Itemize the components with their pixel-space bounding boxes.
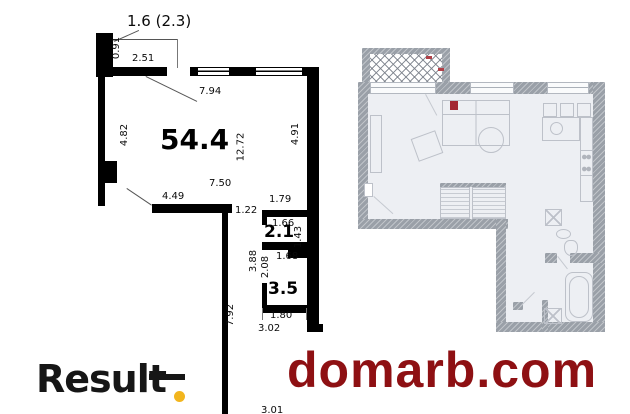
room-2-1-label: 2.1	[264, 224, 294, 241]
dim-1-43: 1.43	[294, 226, 304, 248]
dim-1-68: 1.68	[276, 252, 298, 262]
entry-door-leaf	[364, 183, 373, 197]
top-wall-a	[96, 67, 167, 76]
dim-1-22: 1.22	[235, 206, 257, 216]
wall-cabinet-2	[560, 103, 574, 117]
left-wall-upper	[98, 76, 105, 161]
dim-3-02: 3.02	[258, 324, 280, 334]
balcony-right-wall	[442, 48, 450, 86]
right-wall-foot	[307, 324, 323, 332]
dim-3-88: 3.88	[249, 250, 259, 272]
listing-image: 1.6 (2.3) 0.91 2.51 7.94 4.82 54.4 12.72…	[0, 0, 630, 414]
round-table	[478, 127, 504, 153]
window-a	[470, 82, 514, 94]
result-logo-text: Result	[36, 360, 166, 398]
window-2	[255, 67, 303, 76]
dim-4-91: 4.91	[291, 123, 301, 145]
left-wall-block	[98, 161, 117, 183]
dim-3-01-clipped: 3.01	[261, 406, 283, 414]
window-1	[197, 67, 230, 76]
left-wall	[358, 82, 368, 229]
bathtub-inner	[569, 276, 589, 318]
ext-tick-a	[262, 308, 263, 320]
inner-vertical-wall	[496, 219, 506, 332]
room21-top-wall	[262, 210, 307, 217]
wall-cabinet-1	[543, 103, 557, 117]
top-wall-c	[230, 67, 255, 76]
balcony-left-wall	[362, 48, 370, 86]
right-wall	[307, 67, 319, 324]
kitchen-sink	[550, 122, 563, 135]
bathroom-sink	[556, 229, 571, 239]
dim-4-82: 4.82	[120, 124, 130, 146]
bath-partition-b	[570, 253, 605, 263]
dim-2-51: 2.51	[132, 54, 154, 64]
dim-2-08: 2.08	[261, 256, 271, 278]
total-area-label: 54.4	[160, 126, 229, 154]
balcony-area-label: 1.6 (2.3)	[127, 14, 191, 29]
right-floorplan	[352, 44, 622, 340]
dim-4-49: 4.49	[162, 192, 184, 202]
dim-0-91: 0.91	[112, 37, 122, 59]
wardrobe-2	[472, 187, 506, 219]
dim-7-92: 7.92	[226, 304, 236, 326]
bath-partition-a	[545, 253, 557, 263]
red-tick-1	[426, 56, 432, 59]
balcony-right-line	[177, 39, 178, 68]
balcony-window	[370, 82, 436, 94]
window-b	[547, 82, 589, 94]
room-3-5-label: 3.5	[268, 281, 298, 298]
toilet	[564, 240, 578, 256]
tv-stand	[370, 115, 382, 173]
washing-machine-2	[544, 308, 562, 324]
room-door-swing-line	[126, 188, 151, 206]
red-tick-2	[438, 68, 444, 71]
balcony-door-swing-line	[146, 76, 198, 102]
balcony-top-wall	[362, 48, 450, 54]
right-wall	[593, 82, 605, 332]
dim-12-72: 12.72	[236, 133, 246, 162]
top-wall-b	[190, 67, 197, 76]
balcony-top-line	[113, 39, 178, 40]
bottom-left-wall	[358, 219, 508, 229]
dim-1-80: 1.80	[270, 311, 292, 321]
result-logo-t-bar	[149, 374, 185, 380]
result-logo-dot	[174, 391, 185, 402]
washing-machine-1	[545, 209, 562, 226]
wardrobe-1	[440, 187, 470, 219]
dim-7-50: 7.50	[209, 179, 231, 189]
ext-tick-b	[306, 308, 307, 320]
wall-cabinet-3	[577, 103, 591, 117]
dim-7-94: 7.94	[199, 87, 221, 97]
red-marker-square	[450, 101, 458, 110]
room-bottom-wall	[152, 204, 232, 213]
stove	[580, 150, 593, 176]
dim-1-79: 1.79	[269, 195, 291, 205]
site-watermark: domarb.com	[287, 345, 597, 395]
left-wall-lower	[98, 183, 105, 206]
